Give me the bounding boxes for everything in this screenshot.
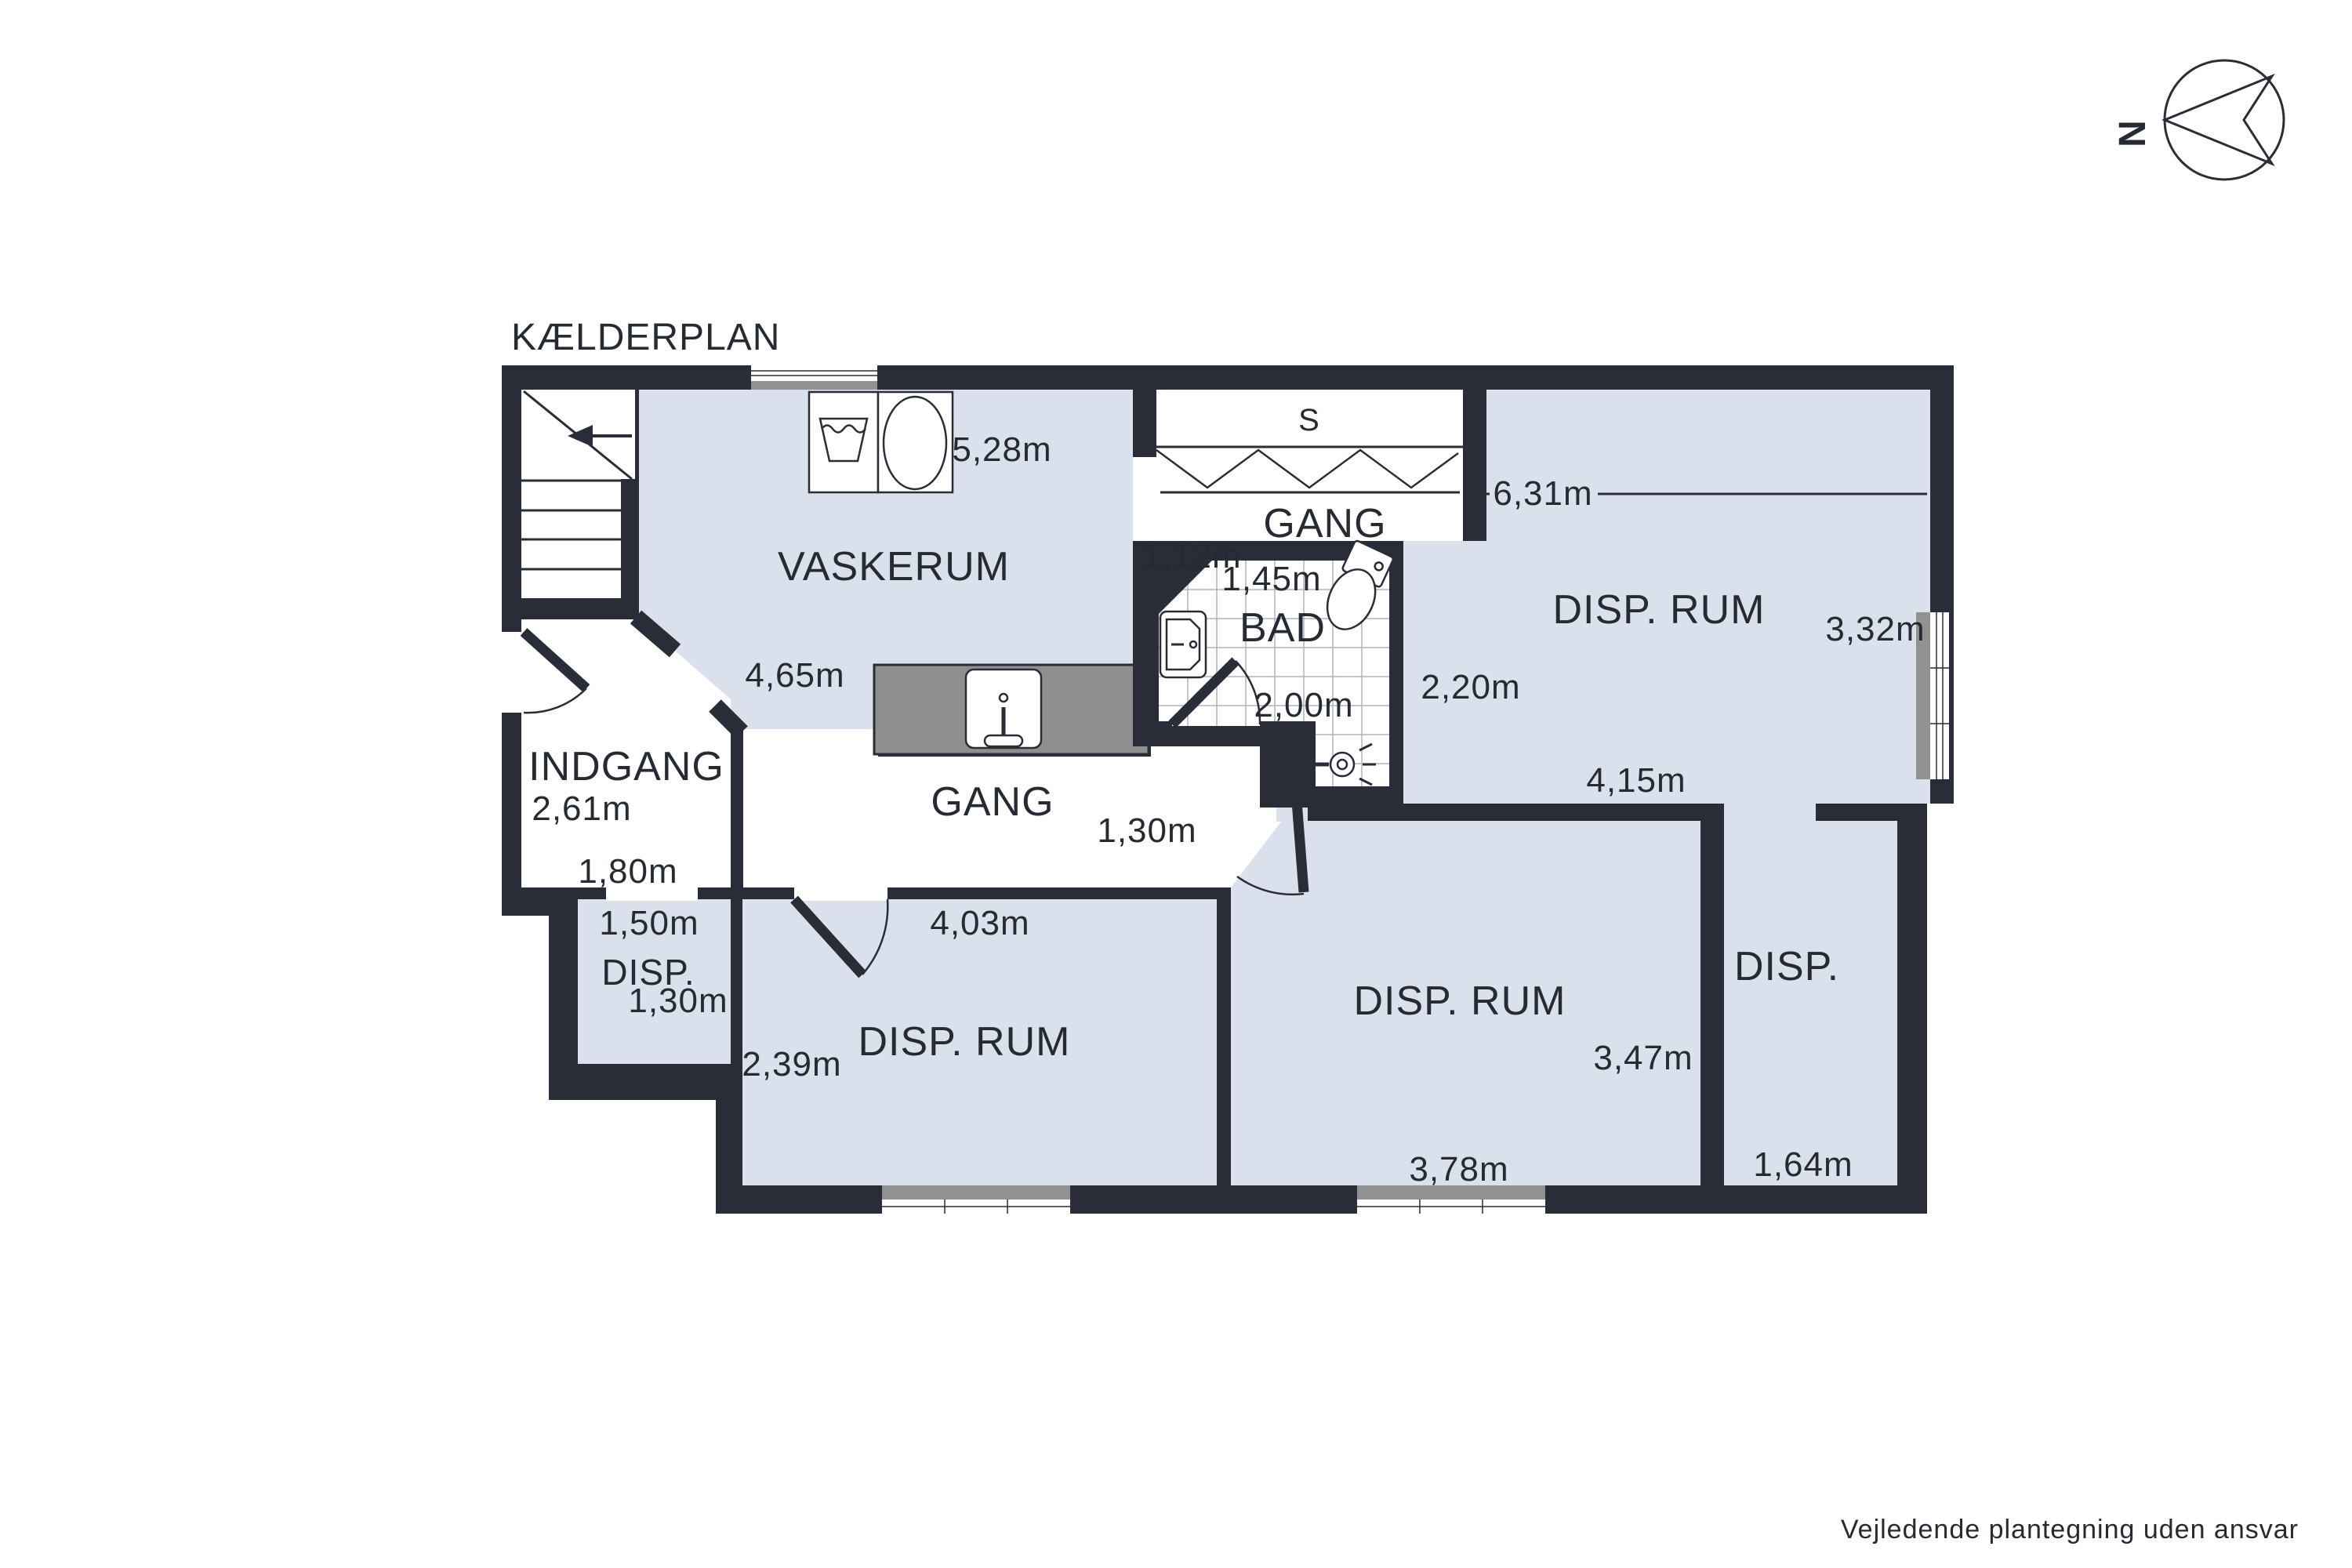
d332-label: 3,32m — [1825, 610, 1925, 648]
disclaimer-label: Vejledende plantegning uden ansvar — [1841, 1515, 2299, 1544]
gang-top-label: GANG — [1263, 501, 1386, 546]
d130s-label: 1,30m — [628, 982, 728, 1020]
gang-mid-label: GANG — [931, 779, 1054, 825]
laundry-sink-icon — [809, 392, 878, 492]
disp-bl-label: DISP. RUM — [858, 1019, 1071, 1065]
d239-label: 2,39m — [742, 1045, 841, 1083]
d415-label: 4,15m — [1586, 761, 1686, 800]
d145-label: 1,45m — [1221, 560, 1321, 598]
d528-label: 5,28m — [952, 430, 1051, 469]
bad-label: BAD — [1240, 605, 1326, 651]
d180-label: 1,80m — [578, 852, 677, 891]
disp-tr-label: DISP. RUM — [1553, 587, 1766, 633]
d130g-label: 1,30m — [1097, 811, 1196, 850]
d631-label: 6,31m — [1493, 474, 1592, 513]
d347-label: 3,47m — [1593, 1039, 1693, 1077]
floor-plan-page: KÆLDERPLANSGANG6,31m1,12m5,28mVASKERUM4,… — [0, 0, 2352, 1568]
d261-label: 2,61m — [532, 789, 631, 828]
room-stairwell — [521, 390, 635, 598]
disp-bm-label: DISP. RUM — [1354, 978, 1566, 1024]
counter-with-sink — [874, 665, 1149, 754]
d378-label: 3,78m — [1409, 1150, 1508, 1189]
bathroom-sink-icon — [1160, 612, 1206, 677]
vaskerum-gang-opening — [1133, 457, 1159, 541]
entry-opening — [497, 632, 522, 713]
d150-label: 1,50m — [599, 904, 699, 942]
s-label-label: S — [1298, 403, 1320, 437]
window-bottom-middle — [1357, 1185, 1545, 1214]
north-arrow-icon — [2165, 76, 2272, 164]
window-top — [751, 365, 877, 390]
d200-label: 2,00m — [1254, 686, 1353, 724]
compass — [2165, 60, 2284, 180]
d465-label: 4,65m — [745, 656, 844, 695]
compass-n-label: N — [2112, 119, 2154, 147]
window-bottom-left — [882, 1185, 1070, 1214]
gang-disprum-opening — [794, 886, 887, 901]
indgang-label: INDGANG — [528, 744, 724, 789]
d164-label: 1,64m — [1753, 1145, 1853, 1184]
vaskerum-label: VASKERUM — [778, 544, 1010, 590]
disp-r-label: DISP. — [1734, 944, 1839, 989]
d403-label: 4,03m — [930, 904, 1029, 942]
title-label: KÆLDERPLAN — [511, 317, 780, 358]
washing-machine-icon — [878, 392, 953, 492]
room-disp-right — [1724, 804, 1897, 1185]
d220-label: 2,20m — [1421, 668, 1520, 706]
floor-plan-canvas: KÆLDERPLANSGANG6,31m1,12m5,28mVASKERUM4,… — [0, 0, 2352, 1568]
